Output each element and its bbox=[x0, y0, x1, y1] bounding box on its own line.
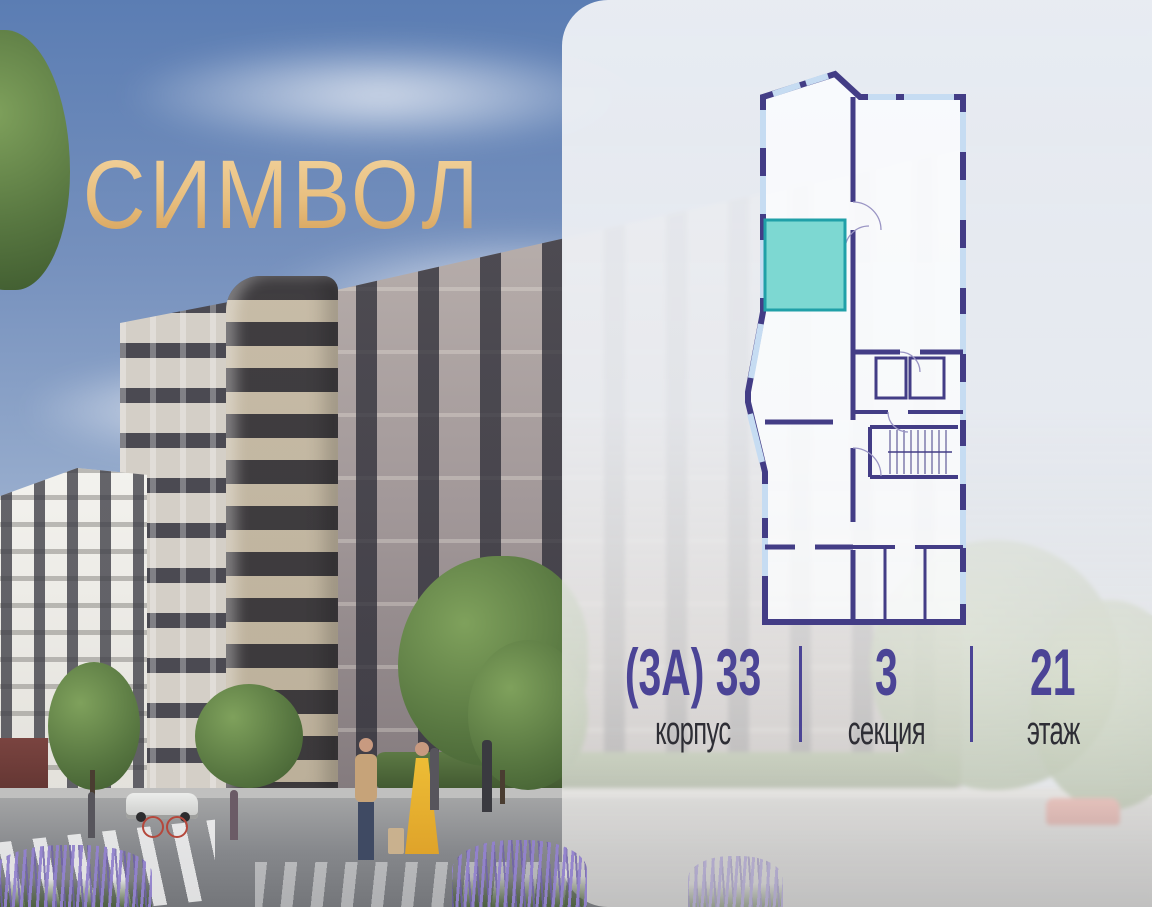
bicycle-wheel bbox=[166, 816, 188, 838]
pedestrian-distant bbox=[430, 748, 439, 810]
floorplan[interactable] bbox=[740, 52, 992, 652]
page: СИМВОЛ bbox=[0, 0, 1152, 907]
floorplan-svg bbox=[740, 52, 992, 652]
floor-label: этаж bbox=[1027, 711, 1080, 751]
bicycle-wheel bbox=[142, 816, 164, 838]
shopping-bag bbox=[388, 828, 404, 854]
tree-center bbox=[195, 684, 303, 788]
apartment-info-row: (3А) 33 корпус 3 секция 21 этаж bbox=[587, 642, 1135, 751]
brand-logo: СИМВОЛ bbox=[78, 146, 488, 243]
highlighted-apartment-unit[interactable] bbox=[765, 220, 845, 310]
info-panel: (3А) 33 корпус 3 секция 21 этаж bbox=[562, 0, 1152, 907]
building-value: (3А) 33 bbox=[625, 642, 761, 703]
section-label: секция bbox=[847, 711, 924, 751]
section-value: 3 bbox=[875, 642, 898, 703]
floor-value: 21 bbox=[1030, 642, 1076, 703]
pedestrian-distant bbox=[482, 740, 492, 812]
pedestrian-distant bbox=[88, 792, 95, 838]
pedestrian-tan-jacket bbox=[346, 738, 386, 860]
building-label: корпус bbox=[655, 711, 730, 751]
info-section: 3 секция bbox=[802, 642, 970, 751]
tree-trunk bbox=[500, 770, 505, 804]
lavender-bush-right-faint bbox=[688, 856, 783, 907]
info-building: (3А) 33 корпус bbox=[587, 642, 799, 751]
lavender-bush-center bbox=[452, 840, 587, 907]
lavender-bush-left bbox=[0, 845, 152, 907]
pedestrian-distant bbox=[230, 790, 238, 840]
info-floor: 21 этаж bbox=[973, 642, 1133, 751]
